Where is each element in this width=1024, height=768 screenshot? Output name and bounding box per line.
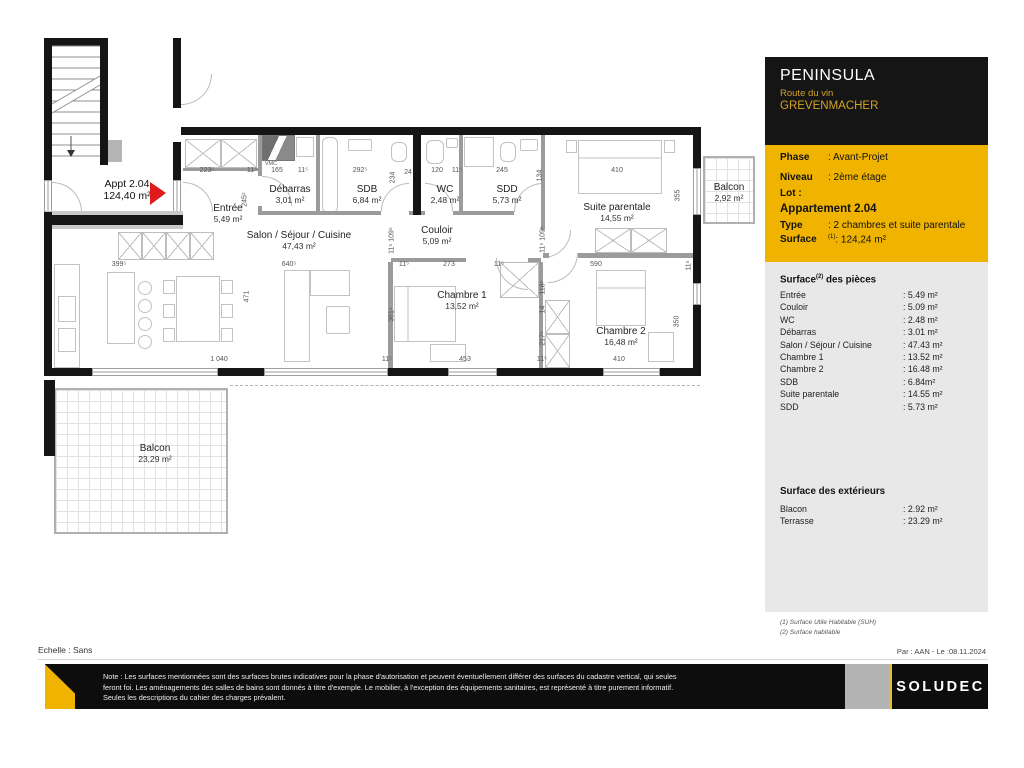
- soludec-logo-text: SOLUDEC: [893, 664, 988, 709]
- partition-wall: [578, 253, 695, 258]
- project-city: GREVENMACHER: [780, 100, 878, 112]
- structural-wall: [218, 368, 264, 376]
- surface-room-value: : 6.84m²: [903, 377, 935, 387]
- window: [693, 283, 701, 305]
- structural-wall: [693, 127, 701, 168]
- furniture-item: [500, 142, 516, 162]
- partition-wall: [463, 211, 514, 215]
- surface-room-name: Chambre 2: [780, 364, 824, 374]
- stool-seat: [138, 317, 152, 331]
- surface-room-value: : 5.09 m²: [903, 302, 938, 312]
- dimension-label: 640⁵: [244, 261, 334, 268]
- dimension-label: VMC: [226, 161, 316, 167]
- surface-room-value: : 5.73 m²: [903, 402, 938, 412]
- roof-edge-line: [230, 385, 700, 386]
- room-area: 14,55 m²: [542, 213, 692, 224]
- furniture-item: [664, 140, 675, 153]
- window: [92, 368, 218, 376]
- surface-room-name: Salon / Séjour / Cuisine: [780, 340, 872, 350]
- partition-wall: [421, 211, 425, 215]
- built-in-closet: [190, 232, 214, 260]
- scale-label: Echelle : Sans: [38, 645, 92, 655]
- furniture-item: [446, 138, 458, 148]
- info-row: Lot :: [780, 188, 828, 199]
- built-in-closet: [142, 232, 166, 260]
- exterior-row: Blacon: 2.92 m²: [780, 504, 980, 514]
- room-area: 23,29 m²: [80, 454, 230, 465]
- info-row: Type: 2 chambres et suite parentale: [780, 220, 965, 231]
- exterior-value: : 2.92 m²: [903, 504, 938, 514]
- info-label: Appartement 2.04: [780, 203, 877, 215]
- info-row: Phase: Avant-Projet: [780, 152, 888, 163]
- furniture-item: [176, 276, 220, 342]
- surface-room-value: : 3.01 m²: [903, 327, 938, 337]
- furniture-item: [426, 140, 444, 164]
- surface-row: Suite parentale: 14.55 m²: [780, 389, 980, 399]
- built-in-closet: [185, 139, 221, 168]
- dimension-label: 590: [551, 261, 641, 268]
- footer-divider: [38, 659, 988, 660]
- structural-wall: [173, 142, 181, 180]
- surface-room-name: WC: [780, 315, 795, 325]
- floor-plan-drawing: Entrée5,49 m²Débarras3,01 m²SDB6,84 m²WC…: [0, 0, 770, 560]
- structural-wall: [388, 368, 448, 376]
- room-area: 5,09 m²: [362, 236, 512, 247]
- dimension-label: 410: [572, 167, 662, 174]
- furniture-item: [566, 140, 577, 153]
- dimension-label: 1 040: [174, 356, 264, 363]
- rooms-surface-heading: Surface(2) des pièces: [780, 274, 876, 285]
- structural-wall: [660, 368, 701, 376]
- logo-divider: [889, 664, 892, 709]
- furniture-item: [520, 139, 538, 151]
- structural-wall: [44, 380, 55, 456]
- info-label: Type: [780, 220, 828, 231]
- surface-room-value: : 5.49 m²: [903, 290, 938, 300]
- room-label: Couloir5,09 m²: [362, 225, 512, 247]
- exterior-name: Terrasse: [780, 516, 814, 526]
- built-in-closet: [118, 232, 142, 260]
- furniture-item: [107, 272, 135, 344]
- surface-row: Chambre 2: 16.48 m²: [780, 364, 980, 374]
- room-name: Chambre 1: [387, 290, 537, 301]
- surface-room-value: : 13.52 m²: [903, 352, 943, 362]
- furniture-item: [221, 304, 233, 318]
- exterior-value: : 23.29 m²: [903, 516, 943, 526]
- info-row: Appartement 2.04: [780, 203, 877, 215]
- apartment-number: Appt 2.04: [72, 179, 182, 191]
- furniture-item: [221, 280, 233, 294]
- surfaces-panel: Surface(2) des pièces Entrée: 5.49 m²Cou…: [765, 262, 988, 612]
- surface-room-name: Débarras: [780, 327, 816, 337]
- note-text: Note : Les surfaces mentionnées sont des…: [103, 672, 678, 704]
- footnote-2: (2) Surface habitable: [780, 629, 840, 636]
- vmc-shaft: [262, 135, 295, 161]
- surface-room-value: : 14.55 m²: [903, 389, 943, 399]
- furniture-item: [296, 137, 314, 157]
- furniture-item: [163, 304, 175, 318]
- stool-seat: [138, 335, 152, 349]
- apartment-total-area: 124,40 m²: [72, 191, 182, 203]
- info-row: Surface(1): 124,24 m²: [780, 234, 886, 245]
- dimension-label: 245: [457, 167, 547, 174]
- surface-row: Chambre 1: 13.52 m²: [780, 352, 980, 362]
- info-value: : Avant-Projet: [828, 152, 888, 163]
- room-label: Balcon23,29 m²: [80, 443, 230, 465]
- surface-room-name: SDD: [780, 402, 799, 412]
- furniture-item: [310, 270, 350, 296]
- room-name: Balcon: [80, 443, 230, 454]
- furniture-item: [464, 137, 494, 167]
- soludec-logo-mark: [845, 664, 889, 709]
- surface-room-name: Chambre 1: [780, 352, 824, 362]
- apartment-info-panel: Phase: Avant-ProjetNiveau: 2ème étageLot…: [765, 145, 988, 262]
- dimension-label: 350: [674, 277, 681, 367]
- furniture-item: [58, 328, 76, 352]
- furniture-item: [163, 328, 175, 342]
- dimension-label: 245⁵: [242, 155, 249, 245]
- room-label: Suite parentale14,55 m²: [542, 202, 692, 224]
- built-in-closet: [595, 228, 631, 253]
- room-area: 5,49 m²: [153, 214, 303, 225]
- dimension-label: 217⁵: [540, 294, 547, 384]
- surface-row: Salon / Séjour / Cuisine: 47.43 m²: [780, 340, 980, 350]
- exteriors-heading: Surface des extérieurs: [780, 486, 885, 497]
- info-label: Surface: [780, 234, 828, 245]
- dimension-label: 355: [675, 151, 682, 241]
- dimension-label: 410: [574, 356, 664, 363]
- structural-wall: [44, 38, 108, 46]
- stool-seat: [138, 299, 152, 313]
- surface-row: SDB: 6.84m²: [780, 377, 980, 387]
- furniture-item: [326, 306, 350, 334]
- exterior-name: Blacon: [780, 504, 807, 514]
- surface-room-name: Entrée: [780, 290, 806, 300]
- door-swing-arc: [181, 74, 212, 105]
- structural-wall: [44, 38, 52, 180]
- surface-row: Entrée: 5.49 m²: [780, 290, 980, 300]
- room-name: Couloir: [362, 225, 512, 236]
- structural-wall: [52, 368, 92, 376]
- structural-wall: [181, 127, 701, 135]
- author-date-label: Par : AAN - Le :08.11.2024: [758, 647, 986, 656]
- surface-room-name: SDB: [780, 377, 798, 387]
- surface-row: Débarras: 3.01 m²: [780, 327, 980, 337]
- window: [448, 368, 497, 376]
- title-block-header: PENINSULA Route du vin GREVENMACHER: [765, 57, 988, 145]
- surface-room-name: Suite parentale: [780, 389, 839, 399]
- info-row: Niveau: 2ème étage: [780, 172, 886, 183]
- dimension-label: 11⁵: [342, 356, 432, 363]
- info-value: : 124,24 m²: [835, 234, 886, 245]
- info-value: : 2 chambres et suite parentale: [828, 220, 965, 231]
- landing-element: [108, 140, 122, 162]
- dimension-label: 361⁵: [389, 270, 396, 360]
- dimension-label: 399⁵: [74, 261, 164, 268]
- structural-wall: [173, 38, 181, 108]
- furniture-item: [348, 139, 372, 151]
- footnote-1: (1) Surface Utile Habitable (SUH): [780, 619, 876, 626]
- room-name: SDD: [432, 184, 582, 195]
- built-in-closet: [631, 228, 667, 253]
- furniture-item: [284, 270, 310, 362]
- surface-room-value: : 2.48 m²: [903, 315, 938, 325]
- structural-wall: [100, 38, 108, 165]
- surface-room-value: : 16.48 m²: [903, 364, 943, 374]
- partition-wall: [320, 211, 381, 215]
- partition-wall: [453, 211, 463, 215]
- surface-room-value: : 47.43 m²: [903, 340, 943, 350]
- info-label: Niveau: [780, 172, 828, 183]
- room-area: 13,52 m²: [387, 301, 537, 312]
- floor-plan-sheet: Entrée5,49 m²Débarras3,01 m²SDB6,84 m²WC…: [0, 0, 1024, 768]
- room-label: Chambre 113,52 m²: [387, 290, 537, 312]
- window: [603, 368, 660, 376]
- furniture-item: [58, 296, 76, 322]
- surface-row: Couloir: 5.09 m²: [780, 302, 980, 312]
- structural-wall: [497, 368, 603, 376]
- info-label: Phase: [780, 152, 828, 163]
- structural-wall: [44, 212, 52, 376]
- furniture-item: [596, 270, 646, 326]
- stool-seat: [138, 281, 152, 295]
- dimension-label: 11⁵: [686, 221, 693, 311]
- built-in-closet: [166, 232, 190, 260]
- furniture-item: [221, 328, 233, 342]
- info-value: : 2ème étage: [828, 172, 886, 183]
- exterior-row: Terrasse: 23.29 m²: [780, 516, 980, 526]
- project-name: PENINSULA: [780, 67, 875, 85]
- door-swing-arc: [548, 253, 578, 283]
- project-street: Route du vin: [780, 88, 833, 99]
- surface-room-name: Couloir: [780, 302, 808, 312]
- info-label: Lot :: [780, 188, 828, 199]
- structural-wall: [693, 215, 701, 283]
- window: [44, 180, 52, 212]
- surface-row: SDD: 5.73 m²: [780, 402, 980, 412]
- furniture-item: [163, 280, 175, 294]
- apartment-tag: Appt 2.04124,40 m²: [72, 179, 182, 202]
- room-label: Entrée5,49 m²: [153, 203, 303, 225]
- window: [264, 368, 388, 376]
- dimension-label: 11⁵: [454, 261, 544, 268]
- surface-row: WC: 2.48 m²: [780, 315, 980, 325]
